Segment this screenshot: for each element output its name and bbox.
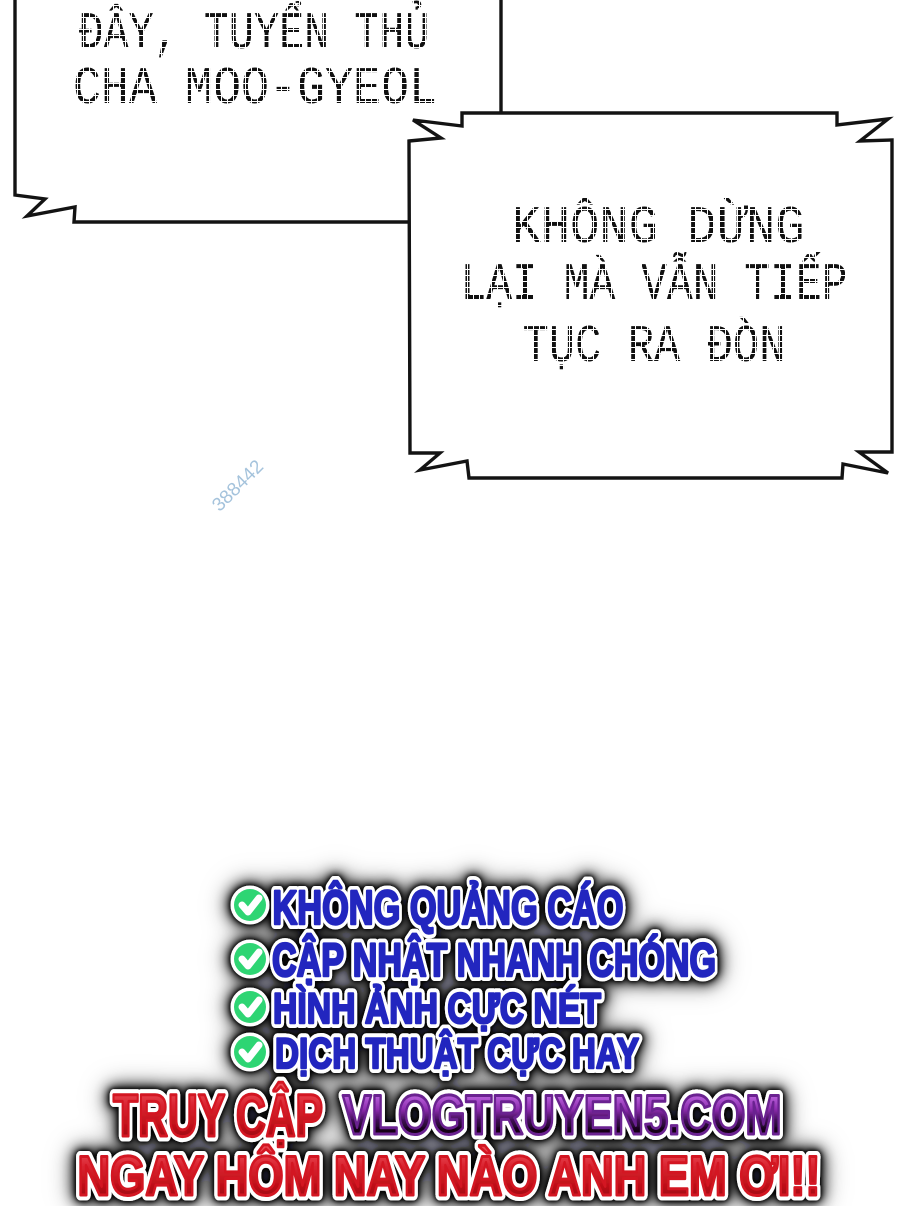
svg-text:KHÔNG DỪNG: KHÔNG DỪNG (512, 197, 805, 258)
svg-text:LẠI MÀ VẪN TIẾP: LẠI MÀ VẪN TIẾP (461, 251, 848, 315)
svg-text:ĐÂY, TUYỂN THỦ: ĐÂY, TUYỂN THỦ (79, 0, 430, 64)
svg-text:CHA MOO-GYEOL: CHA MOO-GYEOL (73, 59, 437, 119)
svg-text:TỤC RA ĐÒN: TỤC RA ĐÒN (523, 316, 786, 377)
